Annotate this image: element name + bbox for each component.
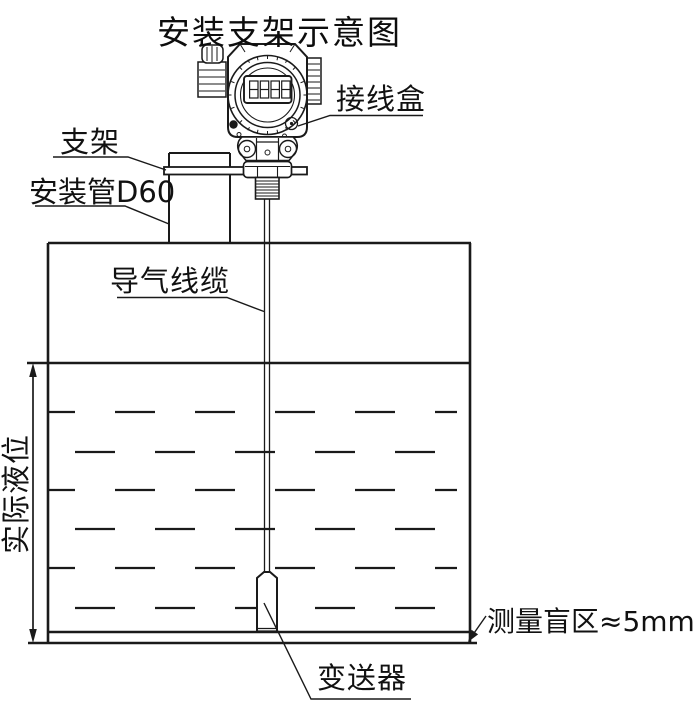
- bracket-label: 支架: [60, 127, 120, 159]
- transmitter-head: [198, 44, 321, 199]
- air-cable-label: 导气线缆: [110, 266, 230, 298]
- liquid-dashes: [49, 412, 457, 608]
- air-cable-leader: [117, 298, 264, 312]
- conduit-port: [306, 58, 321, 104]
- neck-flange: [238, 137, 298, 161]
- junction-box-label: 接线盒: [336, 84, 426, 116]
- air-guide-cable: [265, 199, 270, 572]
- diagram-canvas: 安装支架示意图 接线盒 支架 安装管D60 导气线缆 实际液位 测量盲区≈5mm…: [0, 0, 700, 708]
- hex-nut: [244, 162, 292, 178]
- tank-outline: [27, 243, 477, 644]
- transmitter-label: 变送器: [317, 663, 407, 695]
- junction-box-leader: [298, 116, 423, 127]
- threaded-stem: [256, 178, 280, 200]
- blind-zone-label: 测量盲区≈5mm: [487, 607, 695, 638]
- page-title: 安装支架示意图: [157, 6, 402, 54]
- mounting-pipe-label: 安装管D60: [29, 177, 175, 209]
- actual-level-label: 实际液位: [1, 424, 33, 564]
- lcd-display: [244, 76, 292, 103]
